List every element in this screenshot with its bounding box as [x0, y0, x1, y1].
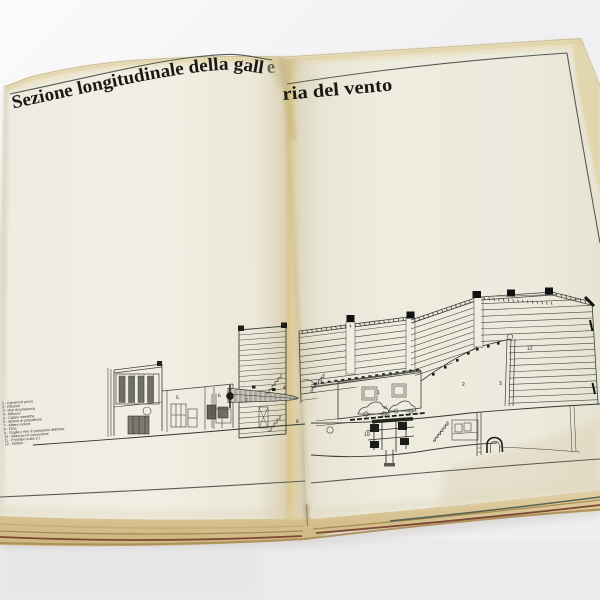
svg-text:6: 6 [218, 393, 221, 399]
svg-text:10: 10 [364, 432, 370, 438]
svg-text:3: 3 [499, 381, 502, 387]
svg-text:1: 1 [377, 390, 380, 396]
svg-text:4: 4 [283, 385, 286, 391]
svg-text:e: e [266, 57, 275, 78]
svg-text:2: 2 [462, 382, 465, 388]
svg-text:5: 5 [176, 395, 179, 401]
svg-text:7: 7 [245, 398, 248, 404]
svg-text:12: 12 [527, 346, 533, 352]
svg-text:11: 11 [383, 405, 388, 410]
svg-text:8: 8 [296, 419, 299, 425]
